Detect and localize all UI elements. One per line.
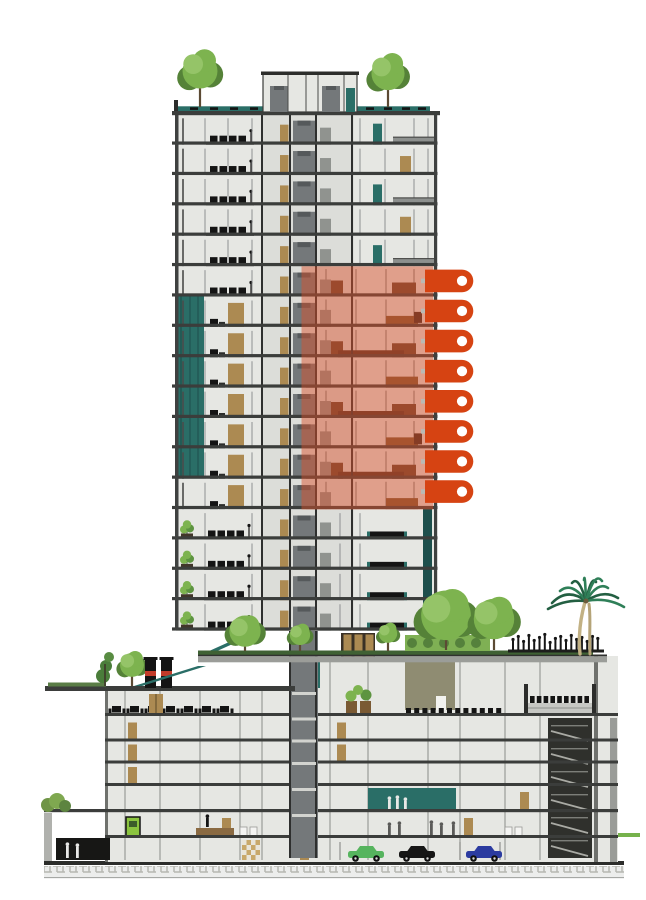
annex-roof-trees: [96, 651, 148, 686]
core-lower: [290, 630, 318, 858]
section-drawing-stage: [0, 0, 646, 900]
floor-tag-3[interactable]: [421, 330, 473, 353]
teal-lobby: [368, 788, 456, 812]
penthouse: [261, 72, 359, 113]
palm-tree: [548, 578, 624, 654]
floor-tag-2[interactable]: [421, 300, 473, 323]
floor-tag-1[interactable]: [421, 270, 473, 293]
tower-roof: [172, 49, 440, 115]
highlight-zone: [302, 266, 434, 509]
floor-tag-7[interactable]: [421, 450, 473, 473]
building-section-svg: [0, 0, 646, 900]
rooftop-crowd: [511, 633, 599, 650]
floor-tag-5[interactable]: [421, 390, 473, 413]
floor-tag-8[interactable]: [421, 480, 473, 503]
street-left: [41, 793, 110, 861]
floor-tag-6[interactable]: [421, 420, 473, 443]
floor-tag-4[interactable]: [421, 360, 473, 383]
